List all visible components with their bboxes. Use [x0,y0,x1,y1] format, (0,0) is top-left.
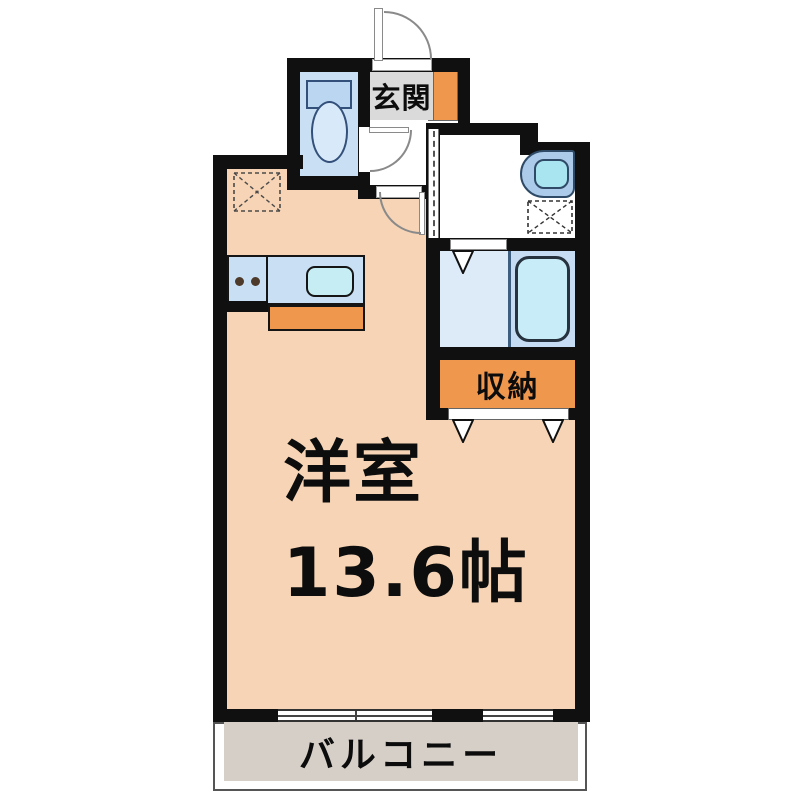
entrance-label: 玄関 [371,75,431,117]
front-door-swing-arc [384,11,432,59]
washing-machine-space [527,200,573,234]
toilet-door-opening [359,127,370,172]
wall-segment [575,142,590,722]
stove-burner-icon [235,277,244,286]
main-room-label-line1: 洋室 [283,424,529,524]
front-door-leaf [374,8,383,61]
wall-segment [426,347,590,360]
stove-burner-icon [251,277,260,286]
toilet-bowl-icon [311,101,348,163]
wall-segment [287,58,300,190]
balcony: バルコニー [224,722,578,781]
storage-label: 収納 [476,362,540,406]
kitchen-sink-icon [306,266,354,297]
wall-segment [458,58,470,124]
entrance-area: 玄関 [369,71,434,121]
kitchen-counter [227,255,365,305]
storage-area: 収納 [440,360,575,408]
balcony-label: バルコニー [299,726,503,778]
bathroom-door-opening [450,239,507,250]
wall-segment [432,709,483,722]
washroom-sliding-door [428,129,439,238]
bathtub-icon [515,256,570,342]
wall-segment [213,301,268,312]
wall-segment [553,709,590,722]
storage-folding-door-icon [542,419,564,443]
wall-segment [213,709,278,722]
sliding-window-small [483,709,553,722]
sliding-window-large [278,709,432,722]
wall-segment [213,155,227,722]
bathroom-floor [440,251,508,347]
window-mullion [355,711,357,720]
floor-plan: バルコニー 玄関 収納 [0,0,800,800]
bathroom-folding-door-icon [452,250,474,274]
refrigerator-space [233,172,281,212]
counter-divider [266,257,268,303]
main-room-label: 洋室 13.6帖 [283,424,529,624]
main-room-label-line2: 13.6帖 [283,524,529,624]
washbasin-bowl-icon [534,159,569,189]
kitchen-cabinet [268,305,365,331]
shoe-cabinet [433,71,458,121]
